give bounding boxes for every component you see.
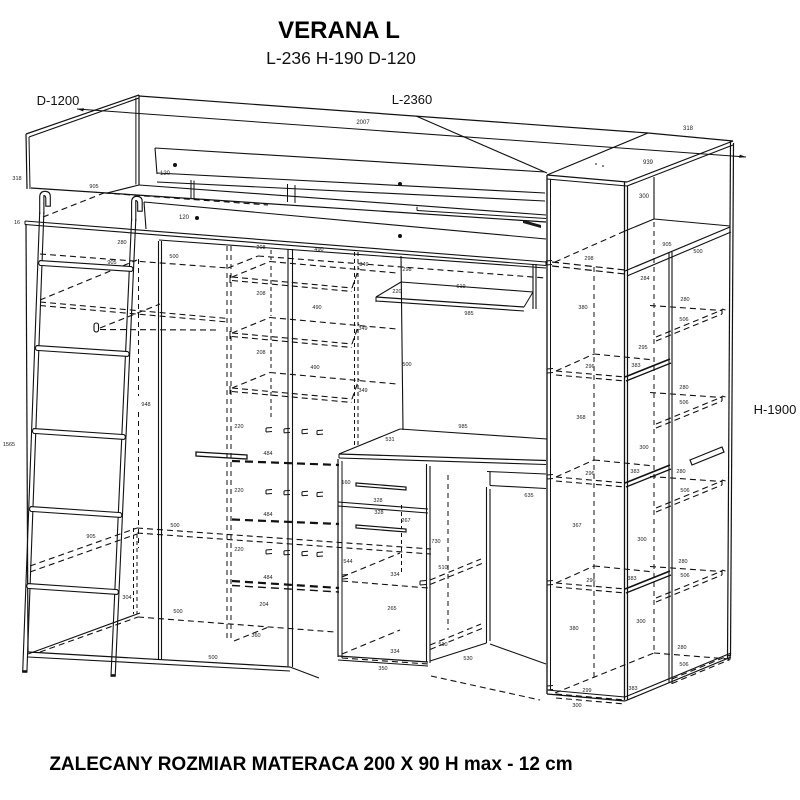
svg-text:300: 300 xyxy=(639,445,648,451)
svg-text:349: 349 xyxy=(358,326,367,332)
svg-text:296: 296 xyxy=(585,471,594,477)
svg-text:120: 120 xyxy=(179,215,190,221)
svg-text:328: 328 xyxy=(373,498,382,504)
svg-text:484: 484 xyxy=(263,512,272,518)
svg-text:985: 985 xyxy=(458,424,467,430)
svg-text:635: 635 xyxy=(524,493,533,499)
svg-text:490: 490 xyxy=(314,247,323,253)
svg-text:506: 506 xyxy=(679,400,688,406)
svg-text:484: 484 xyxy=(263,451,272,457)
svg-text:204: 204 xyxy=(259,602,268,608)
svg-text:280: 280 xyxy=(679,385,688,391)
svg-text:L-2360: L-2360 xyxy=(392,92,432,107)
svg-text:380: 380 xyxy=(569,626,578,632)
svg-text:383: 383 xyxy=(628,686,637,692)
svg-text:280: 280 xyxy=(117,240,126,246)
svg-text:280: 280 xyxy=(676,469,685,475)
svg-text:383: 383 xyxy=(630,469,639,475)
svg-text:318: 318 xyxy=(683,126,694,132)
svg-text:506: 506 xyxy=(679,317,688,323)
svg-text:208: 208 xyxy=(256,245,265,251)
svg-text:265: 265 xyxy=(387,606,396,612)
svg-text:220: 220 xyxy=(234,488,243,494)
svg-text:383: 383 xyxy=(627,576,636,582)
svg-text:296: 296 xyxy=(586,578,595,584)
svg-text:D-1200: D-1200 xyxy=(37,93,80,108)
svg-text:208: 208 xyxy=(256,291,265,297)
svg-text:905: 905 xyxy=(662,242,671,248)
svg-text:334: 334 xyxy=(390,649,399,655)
svg-text:1565: 1565 xyxy=(3,442,15,448)
svg-text:298: 298 xyxy=(402,267,411,273)
svg-text:500: 500 xyxy=(173,609,182,615)
svg-text:510: 510 xyxy=(438,565,447,571)
svg-text:298: 298 xyxy=(584,256,593,262)
svg-text:500: 500 xyxy=(169,254,178,260)
svg-text:328: 328 xyxy=(374,510,383,516)
svg-text:120: 120 xyxy=(160,171,171,177)
svg-text:334: 334 xyxy=(390,572,399,578)
svg-text:160: 160 xyxy=(341,480,350,486)
svg-text:296: 296 xyxy=(585,364,594,370)
svg-text:304: 304 xyxy=(122,595,131,601)
svg-text:16: 16 xyxy=(14,220,20,226)
svg-text:220: 220 xyxy=(392,289,401,295)
svg-text:280: 280 xyxy=(680,297,689,303)
svg-text:368: 368 xyxy=(576,415,585,421)
svg-text:490: 490 xyxy=(312,305,321,311)
svg-text:484: 484 xyxy=(263,575,272,581)
svg-text:510: 510 xyxy=(438,642,447,648)
svg-text:318: 318 xyxy=(12,176,21,182)
svg-text:L-236 H-190 D-120: L-236 H-190 D-120 xyxy=(266,48,416,68)
svg-text:500: 500 xyxy=(208,655,217,661)
svg-text:619: 619 xyxy=(456,284,465,290)
svg-text:948: 948 xyxy=(141,402,150,408)
svg-text:300: 300 xyxy=(639,194,650,200)
svg-text:367: 367 xyxy=(572,523,581,529)
svg-text:295: 295 xyxy=(638,345,647,351)
svg-text:530: 530 xyxy=(463,656,472,662)
svg-text:350: 350 xyxy=(378,666,387,672)
svg-text:220: 220 xyxy=(234,424,243,430)
svg-text:730: 730 xyxy=(431,539,440,545)
svg-text:360: 360 xyxy=(251,633,260,639)
svg-text:506: 506 xyxy=(679,662,688,668)
svg-text:500: 500 xyxy=(693,249,702,255)
svg-text:531: 531 xyxy=(385,437,394,443)
svg-text:500: 500 xyxy=(170,523,179,529)
svg-text:280: 280 xyxy=(678,559,687,565)
svg-text:300: 300 xyxy=(636,619,645,625)
svg-text:H-1900: H-1900 xyxy=(754,402,797,417)
svg-text:380: 380 xyxy=(578,305,587,311)
svg-text:267: 267 xyxy=(401,518,410,524)
svg-text:905: 905 xyxy=(86,534,95,540)
svg-text:284: 284 xyxy=(640,276,649,282)
svg-text:208: 208 xyxy=(256,350,265,356)
svg-text:506: 506 xyxy=(680,573,689,579)
svg-text:506: 506 xyxy=(680,488,689,494)
svg-text:300: 300 xyxy=(637,537,646,543)
svg-text:383: 383 xyxy=(631,363,640,369)
svg-text:349: 349 xyxy=(359,262,368,268)
svg-text:544: 544 xyxy=(343,559,352,565)
svg-text:939: 939 xyxy=(643,160,654,166)
svg-text:280: 280 xyxy=(677,645,686,651)
svg-text:500: 500 xyxy=(402,362,411,368)
svg-text:ZALECANY ROZMIAR MATERACA 200: ZALECANY ROZMIAR MATERACA 200 X 90 H max… xyxy=(49,754,572,775)
svg-text:300: 300 xyxy=(572,703,581,709)
svg-text:985: 985 xyxy=(464,311,473,317)
svg-text:VERANA L: VERANA L xyxy=(278,17,400,44)
svg-text:349: 349 xyxy=(358,388,367,394)
svg-text:490: 490 xyxy=(310,365,319,371)
svg-text:220: 220 xyxy=(234,547,243,553)
svg-text:905: 905 xyxy=(89,184,98,190)
svg-text:2007: 2007 xyxy=(356,120,370,126)
svg-text:299: 299 xyxy=(582,688,591,694)
